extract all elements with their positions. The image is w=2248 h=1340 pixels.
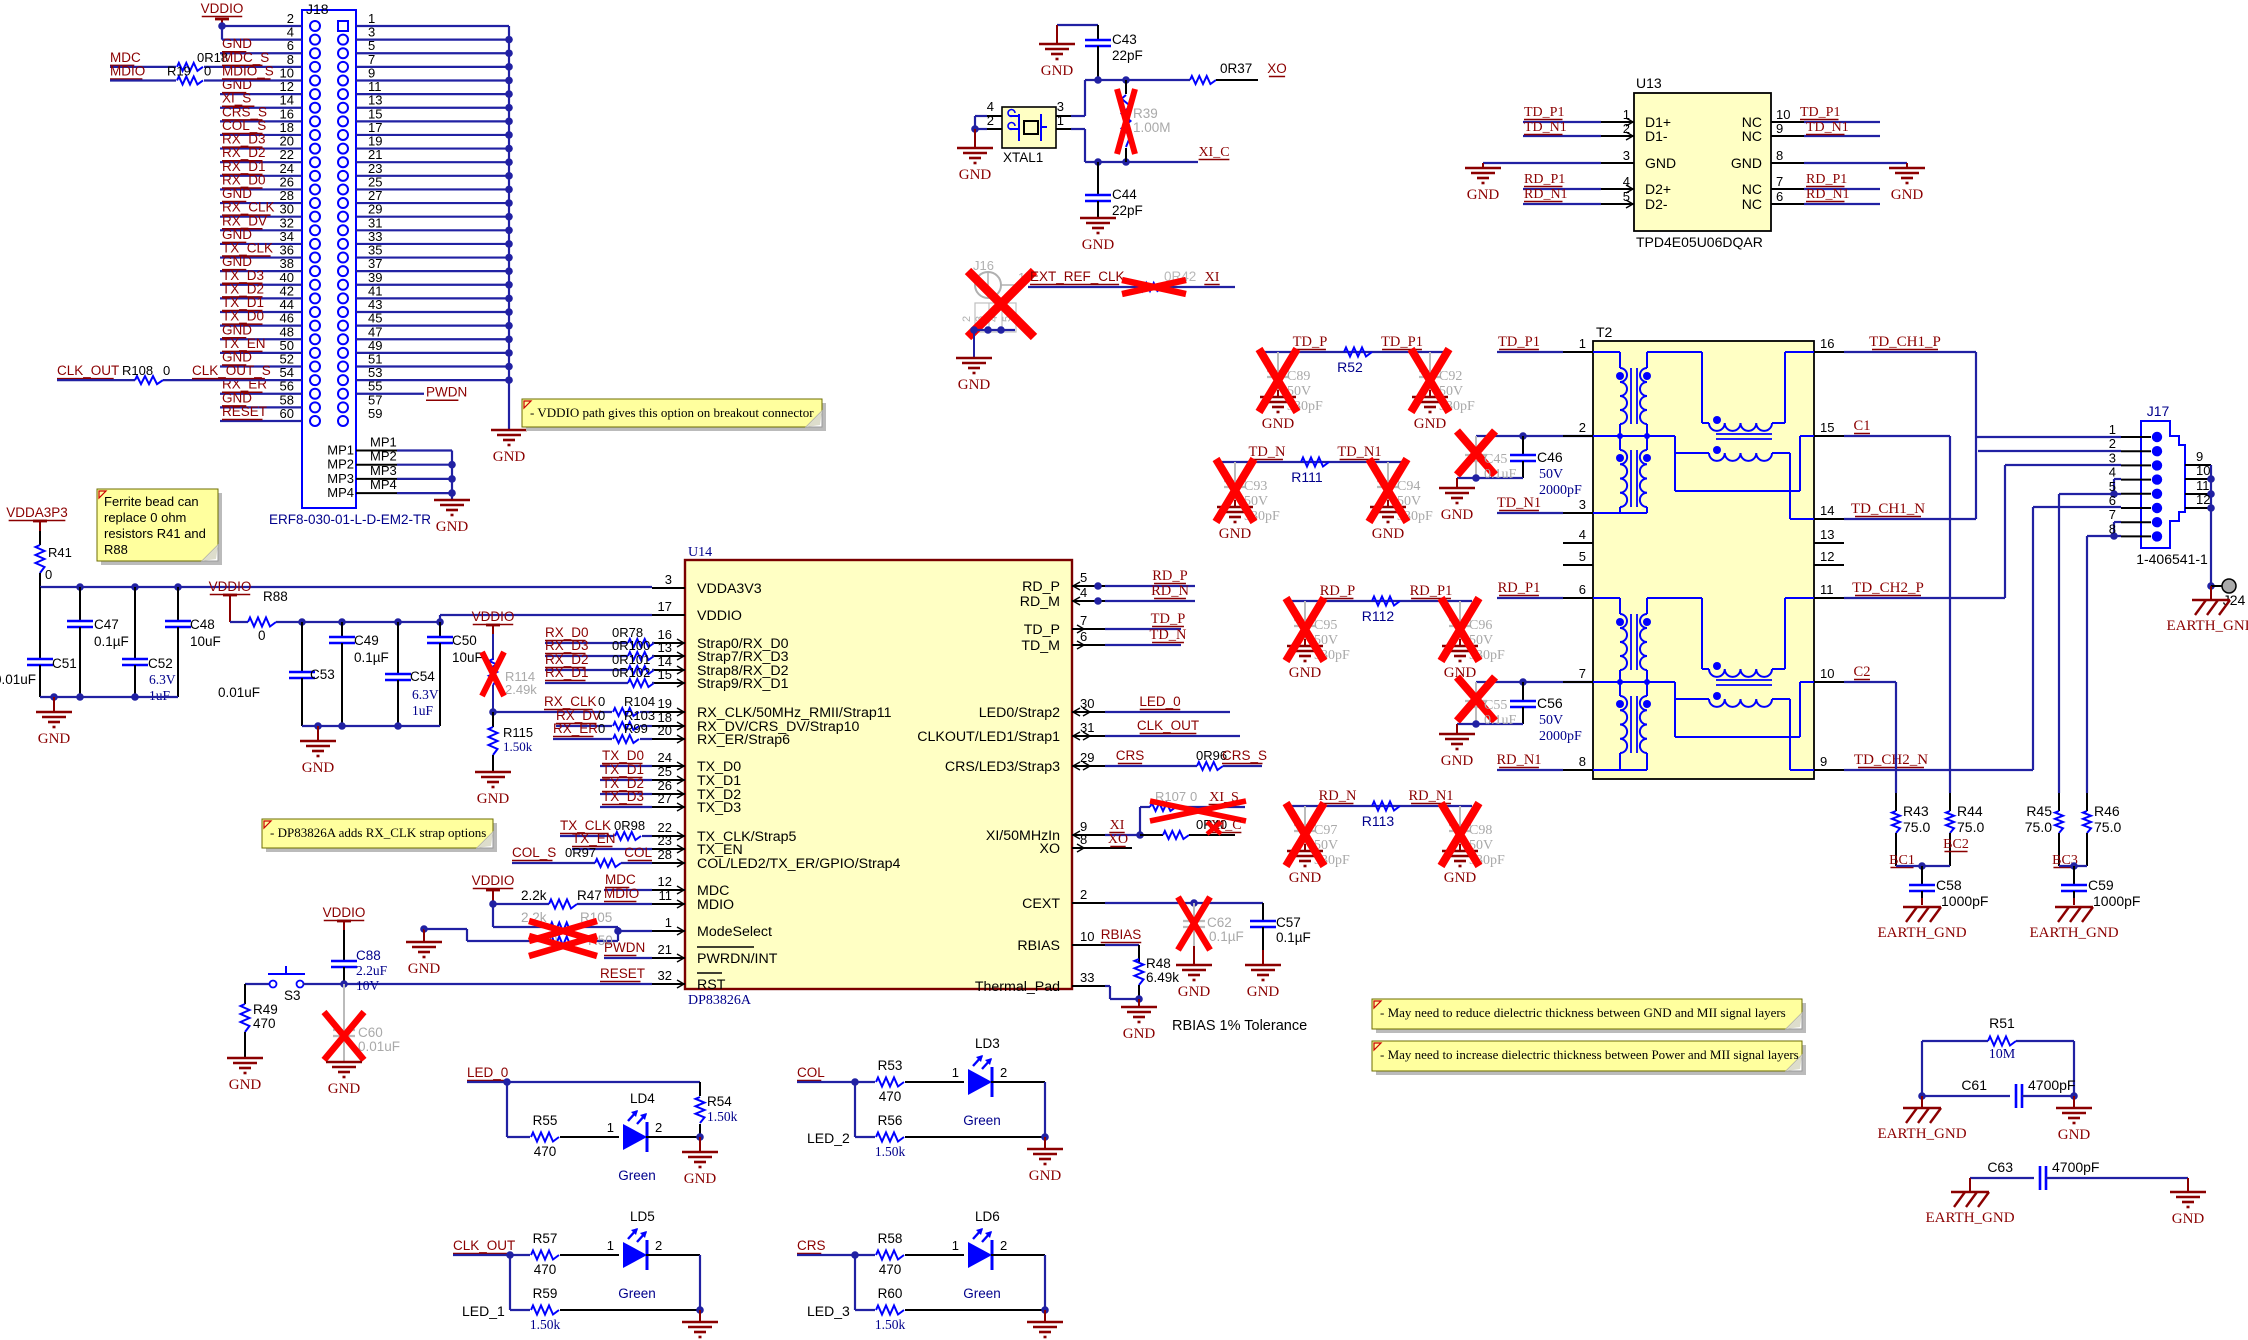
svg-text:RESET: RESET — [600, 966, 645, 981]
svg-text:6.49k: 6.49k — [1146, 970, 1179, 985]
svg-text:LED_1: LED_1 — [462, 1303, 505, 1319]
svg-text:C61: C61 — [1961, 1077, 1987, 1093]
svg-text:C88: C88 — [356, 948, 381, 963]
svg-text:2: 2 — [2109, 436, 2116, 451]
svg-text:XI: XI — [1110, 818, 1125, 833]
svg-text:VDDIO: VDDIO — [201, 1, 244, 16]
svg-text:VDDA3V3: VDDA3V3 — [697, 581, 762, 597]
svg-text:C51: C51 — [52, 656, 77, 671]
svg-text:XO: XO — [1108, 832, 1128, 847]
svg-text:10M: 10M — [1989, 1047, 2016, 1062]
svg-text:C98: C98 — [1469, 823, 1492, 838]
svg-text:TD_P: TD_P — [1151, 611, 1186, 627]
svg-text:GND: GND — [1082, 237, 1115, 253]
svg-text:LD4: LD4 — [630, 1091, 655, 1106]
svg-text:75.0: 75.0 — [2094, 819, 2121, 835]
svg-text:RBIAS: RBIAS — [1101, 927, 1142, 942]
svg-text:10: 10 — [1776, 107, 1790, 122]
svg-text:TD_M: TD_M — [1021, 638, 1060, 654]
svg-text:TD_N1: TD_N1 — [1337, 444, 1381, 460]
svg-text:VDDIO: VDDIO — [472, 873, 515, 888]
svg-text:CRS_S: CRS_S — [1222, 748, 1267, 763]
svg-text:RD_N: RD_N — [1319, 788, 1357, 804]
svg-text:GND: GND — [328, 1081, 361, 1097]
svg-text:4: 4 — [1080, 585, 1087, 600]
svg-text:29: 29 — [1080, 750, 1094, 765]
svg-text:VDDIO: VDDIO — [697, 608, 742, 624]
svg-text:LED_2: LED_2 — [807, 1130, 850, 1146]
svg-text:C49: C49 — [354, 633, 379, 648]
svg-text:TX_EN: TX_EN — [572, 831, 616, 846]
svg-text:R111: R111 — [1291, 469, 1323, 485]
svg-text:R46: R46 — [2094, 803, 2120, 819]
svg-text:VDDIO: VDDIO — [209, 579, 252, 594]
svg-text:6: 6 — [1776, 189, 1783, 204]
svg-text:Thermal_Pad: Thermal_Pad — [975, 979, 1060, 995]
svg-text:GND: GND — [1289, 870, 1322, 886]
svg-text:R41: R41 — [48, 545, 72, 560]
svg-text:28: 28 — [658, 847, 672, 862]
svg-text:CLK_OUT: CLK_OUT — [1137, 718, 1199, 733]
svg-text:1: 1 — [665, 915, 672, 930]
svg-text:0: 0 — [204, 63, 211, 78]
svg-text:6.3V: 6.3V — [149, 672, 176, 687]
svg-text:J16: J16 — [973, 258, 994, 273]
svg-text:0: 0 — [598, 721, 605, 736]
svg-text:R19: R19 — [167, 63, 191, 78]
svg-text:VDDA3P3: VDDA3P3 — [6, 505, 68, 520]
svg-text:GND: GND — [959, 167, 992, 183]
svg-text:TX_D3: TX_D3 — [602, 789, 644, 804]
svg-text:3: 3 — [1623, 148, 1630, 163]
svg-text:TD_N1: TD_N1 — [1497, 495, 1541, 511]
svg-text:MP4: MP4 — [327, 485, 354, 500]
svg-text:0: 0 — [45, 567, 52, 582]
svg-text:23: 23 — [658, 833, 672, 848]
svg-text:CRS/LED3/Strap3: CRS/LED3/Strap3 — [945, 759, 1060, 775]
svg-text:5: 5 — [1080, 570, 1087, 585]
svg-text:COL: COL — [797, 1065, 825, 1080]
svg-text:GND: GND — [229, 1077, 262, 1093]
svg-text:LD6: LD6 — [975, 1209, 1000, 1224]
svg-text:R115: R115 — [503, 725, 533, 740]
svg-text:NC: NC — [1742, 128, 1762, 144]
svg-text:50V: 50V — [1539, 713, 1563, 728]
svg-text:MDIO_S: MDIO_S — [222, 63, 274, 78]
svg-text:2.49k: 2.49k — [505, 682, 537, 697]
svg-text:R48: R48 — [1146, 956, 1171, 971]
svg-text:470: 470 — [879, 1089, 902, 1104]
svg-text:GND: GND — [958, 377, 991, 393]
svg-text:replace 0 ohm: replace 0 ohm — [104, 510, 186, 525]
svg-text:6: 6 — [2109, 493, 2116, 508]
svg-text:CRS: CRS — [797, 1238, 826, 1253]
svg-text:CEXT: CEXT — [1022, 896, 1060, 912]
svg-text:RX_D1: RX_D1 — [545, 665, 589, 680]
svg-text:D1-: D1- — [1645, 128, 1668, 144]
svg-text:C1: C1 — [1854, 418, 1871, 434]
svg-text:U14: U14 — [688, 545, 712, 560]
svg-text:GND: GND — [1178, 984, 1211, 1000]
svg-text:GND: GND — [1444, 870, 1477, 886]
svg-text:C47: C47 — [94, 617, 119, 632]
svg-text:2: 2 — [1579, 420, 1586, 435]
svg-text:- DP83826A adds RX_CLK strap o: - DP83826A adds RX_CLK strap options — [270, 825, 486, 840]
svg-text:RD_N: RD_N — [1151, 583, 1189, 599]
svg-text:C53: C53 — [310, 667, 335, 682]
svg-text:2: 2 — [1080, 887, 1087, 902]
svg-text:0: 0 — [1190, 789, 1197, 804]
svg-text:- VDDIO path gives this option: - VDDIO path gives this option on breako… — [530, 405, 814, 420]
svg-text:RD_P: RD_P — [1320, 583, 1355, 599]
svg-text:C89: C89 — [1287, 369, 1310, 384]
svg-text:470: 470 — [879, 1262, 902, 1277]
svg-text:C43: C43 — [1112, 32, 1137, 47]
svg-text:12: 12 — [2196, 492, 2210, 507]
svg-text:1: 1 — [2109, 422, 2116, 437]
svg-text:9: 9 — [1776, 121, 1783, 136]
svg-text:MP3: MP3 — [327, 471, 354, 486]
svg-text:1.50k: 1.50k — [707, 1109, 738, 1124]
svg-text:C2: C2 — [1854, 664, 1871, 680]
svg-text:RST: RST — [697, 977, 726, 993]
svg-text:RBIAS: RBIAS — [1017, 938, 1060, 954]
svg-text:XO: XO — [1040, 841, 1061, 857]
svg-text:J17: J17 — [2147, 403, 2170, 419]
svg-text:C57: C57 — [1276, 915, 1301, 930]
svg-text:12: 12 — [658, 874, 672, 889]
svg-text:TD_N1: TD_N1 — [1806, 120, 1849, 135]
svg-text:Green: Green — [963, 1286, 1001, 1301]
svg-text:9: 9 — [1820, 754, 1827, 769]
svg-text:33: 33 — [1080, 970, 1094, 985]
svg-text:R113: R113 — [1362, 813, 1395, 829]
svg-text:7: 7 — [2109, 507, 2116, 522]
svg-text:R55: R55 — [533, 1113, 558, 1128]
svg-text:TD_P: TD_P — [1024, 622, 1060, 638]
svg-text:C62: C62 — [1207, 915, 1232, 930]
svg-text:C60: C60 — [358, 1025, 383, 1040]
svg-text:C46: C46 — [1537, 449, 1563, 465]
svg-text:8: 8 — [1080, 832, 1087, 847]
svg-text:GND: GND — [436, 519, 469, 535]
svg-text:ERF8-030-01-L-D-EM2-TR: ERF8-030-01-L-D-EM2-TR — [269, 512, 431, 527]
svg-text:S3: S3 — [284, 988, 301, 1003]
svg-text:10uF: 10uF — [190, 634, 221, 649]
svg-text:RD_P1: RD_P1 — [1524, 172, 1565, 187]
svg-text:RBIAS 1% Tolerance: RBIAS 1% Tolerance — [1172, 1018, 1307, 1034]
svg-text:2.2uF: 2.2uF — [356, 963, 388, 978]
svg-text:30: 30 — [1080, 696, 1094, 711]
svg-text:C45: C45 — [1484, 452, 1507, 467]
svg-text:R104: R104 — [624, 694, 655, 709]
svg-text:9: 9 — [2196, 449, 2203, 464]
svg-text:8: 8 — [1776, 148, 1783, 163]
svg-text:resistors R41 and: resistors R41 and — [104, 526, 206, 541]
svg-text:GND: GND — [1041, 63, 1074, 79]
svg-text:3: 3 — [665, 572, 672, 587]
svg-text:R51: R51 — [1989, 1015, 2015, 1031]
svg-text:C94: C94 — [1397, 479, 1420, 494]
svg-text:MP1: MP1 — [327, 443, 354, 458]
svg-text:LD3: LD3 — [975, 1036, 1000, 1051]
svg-text:75.0: 75.0 — [1957, 819, 1984, 835]
svg-text:6: 6 — [1579, 582, 1586, 597]
svg-text:COL: COL — [624, 845, 652, 860]
svg-text:EARTH_GND: EARTH_GND — [2166, 618, 2248, 634]
svg-text:Green: Green — [963, 1113, 1001, 1128]
svg-text:R88: R88 — [263, 589, 288, 604]
svg-text:LED0/Strap2: LED0/Strap2 — [979, 705, 1060, 721]
svg-text:RX_CLK: RX_CLK — [544, 694, 597, 709]
svg-text:GND: GND — [1029, 1168, 1062, 1184]
svg-text:3: 3 — [2109, 450, 2116, 465]
svg-text:RD_P: RD_P — [1022, 579, 1060, 595]
svg-text:0.1uF: 0.1uF — [1484, 467, 1517, 482]
svg-text:GND: GND — [1441, 753, 1474, 769]
svg-text:GND: GND — [408, 961, 441, 977]
svg-text:10: 10 — [1820, 666, 1834, 681]
svg-text:4: 4 — [2109, 465, 2116, 480]
svg-text:C96: C96 — [1469, 618, 1492, 633]
svg-text:NC: NC — [1742, 181, 1762, 197]
svg-text:MP2: MP2 — [370, 449, 397, 464]
svg-text:VDDIO: VDDIO — [472, 609, 515, 624]
svg-text:C50: C50 — [452, 633, 477, 648]
svg-text:Strap9/RX_D1: Strap9/RX_D1 — [697, 676, 789, 692]
svg-text:C44: C44 — [1112, 187, 1137, 202]
svg-text:Green: Green — [618, 1168, 656, 1183]
svg-text:TD_CH2_N: TD_CH2_N — [1854, 752, 1928, 768]
svg-text:1-406541-1: 1-406541-1 — [2136, 551, 2208, 567]
svg-text:4: 4 — [987, 99, 994, 114]
svg-text:1000pF: 1000pF — [1941, 893, 1988, 909]
svg-text:R54: R54 — [707, 1094, 732, 1109]
svg-text:XI: XI — [1205, 270, 1220, 285]
svg-text:GND: GND — [1247, 984, 1280, 1000]
svg-text:1: 1 — [1579, 336, 1586, 351]
svg-text:- May need to increase dielect: - May need to increase dielectric thickn… — [1380, 1047, 1799, 1062]
svg-text:EARTH_GND: EARTH_GND — [1925, 1210, 2014, 1226]
svg-text:CLK_OUT: CLK_OUT — [453, 1238, 515, 1253]
svg-text:TD_P1: TD_P1 — [1498, 334, 1540, 350]
svg-text:2: 2 — [655, 1120, 662, 1135]
svg-text:0.01uF: 0.01uF — [218, 685, 260, 700]
svg-text:75.0: 75.0 — [1903, 819, 1930, 835]
svg-text:TD_CH1_N: TD_CH1_N — [1851, 501, 1925, 517]
svg-text:2000pF: 2000pF — [1539, 729, 1582, 744]
svg-text:2: 2 — [1000, 1065, 1007, 1080]
svg-text:C63: C63 — [1987, 1159, 2013, 1175]
svg-text:11: 11 — [659, 888, 673, 903]
svg-text:TD_N: TD_N — [1149, 627, 1187, 643]
svg-text:TD_P1: TD_P1 — [1800, 105, 1840, 120]
svg-text:0.1µF: 0.1µF — [354, 650, 389, 665]
svg-text:T2: T2 — [1596, 324, 1613, 340]
svg-text:LED_3: LED_3 — [807, 1303, 850, 1319]
svg-text:J18: J18 — [306, 1, 329, 17]
svg-text:10: 10 — [2196, 463, 2210, 478]
svg-text:1000pF: 1000pF — [2093, 893, 2140, 909]
svg-text:27: 27 — [658, 791, 672, 806]
svg-text:20: 20 — [658, 723, 672, 738]
svg-text:TD_N: TD_N — [1248, 444, 1286, 460]
svg-text:2000pF: 2000pF — [1539, 483, 1582, 498]
svg-text:R57: R57 — [533, 1231, 558, 1246]
svg-text:R43: R43 — [1903, 803, 1929, 819]
svg-text:2: 2 — [1000, 1238, 1007, 1253]
svg-text:7: 7 — [1776, 174, 1783, 189]
svg-text:470: 470 — [253, 1016, 276, 1031]
svg-text:C59: C59 — [2088, 877, 2114, 893]
svg-text:C93: C93 — [1244, 479, 1267, 494]
svg-text:RX_ER/Strap6: RX_ER/Strap6 — [697, 732, 790, 748]
svg-text:0.1µF: 0.1µF — [94, 634, 129, 649]
svg-text:75.0: 75.0 — [2025, 819, 2052, 835]
svg-text:R44: R44 — [1957, 803, 1983, 819]
svg-text:TX_D0: TX_D0 — [602, 748, 644, 763]
svg-text:R49: R49 — [253, 1002, 278, 1017]
svg-text:LED_0: LED_0 — [467, 1065, 508, 1080]
svg-text:1: 1 — [607, 1120, 614, 1135]
svg-text:EARTH_GND: EARTH_GND — [2029, 925, 2118, 941]
svg-text:Ferrite bead can: Ferrite bead can — [104, 494, 199, 509]
svg-text:GND: GND — [1645, 155, 1676, 171]
svg-text:2: 2 — [961, 316, 973, 322]
svg-text:8: 8 — [1579, 754, 1586, 769]
svg-text:59: 59 — [368, 406, 382, 421]
svg-text:GND: GND — [1467, 187, 1500, 203]
svg-text:EARTH_GND: EARTH_GND — [1877, 925, 1966, 941]
svg-text:10V: 10V — [356, 978, 380, 993]
svg-text:GND: GND — [1123, 1026, 1156, 1042]
svg-text:22pF: 22pF — [1112, 48, 1143, 63]
svg-text:2: 2 — [655, 1238, 662, 1253]
svg-text:LD5: LD5 — [630, 1209, 655, 1224]
svg-text:CLKOUT/LED1/Strap1: CLKOUT/LED1/Strap1 — [917, 729, 1060, 745]
svg-text:32: 32 — [658, 968, 672, 983]
svg-text:1: 1 — [607, 1238, 614, 1253]
svg-text:R108: R108 — [122, 363, 153, 378]
svg-text:RD_N1: RD_N1 — [1524, 187, 1568, 202]
svg-text:1.50k: 1.50k — [530, 1317, 561, 1332]
svg-text:R56: R56 — [878, 1113, 903, 1128]
svg-text:4: 4 — [1579, 527, 1586, 542]
svg-text:0: 0 — [258, 628, 266, 643]
svg-text:MDIO: MDIO — [604, 886, 639, 901]
svg-text:5: 5 — [1579, 549, 1586, 564]
svg-text:10uF: 10uF — [452, 650, 483, 665]
svg-text:11: 11 — [1820, 582, 1834, 597]
svg-text:R60: R60 — [878, 1286, 903, 1301]
svg-text:RD_P: RD_P — [1152, 568, 1187, 584]
svg-text:4700pF: 4700pF — [2052, 1159, 2099, 1175]
svg-text:R99: R99 — [624, 721, 648, 736]
svg-text:GND: GND — [2058, 1127, 2091, 1143]
svg-text:1uF: 1uF — [149, 688, 171, 703]
svg-text:VDDIO: VDDIO — [323, 905, 366, 920]
svg-text:21: 21 — [658, 942, 672, 957]
svg-text:GND: GND — [1289, 665, 1322, 681]
svg-text:0: 0 — [598, 694, 605, 709]
svg-text:RD_N1: RD_N1 — [1496, 752, 1541, 768]
svg-text:1.50k: 1.50k — [875, 1144, 906, 1159]
svg-text:C58: C58 — [1936, 877, 1962, 893]
svg-text:R112: R112 — [1362, 608, 1395, 624]
svg-text:3: 3 — [1057, 99, 1064, 114]
svg-text:C56: C56 — [1537, 695, 1563, 711]
svg-text:PWDN: PWDN — [426, 385, 467, 400]
svg-text:MDC: MDC — [605, 872, 636, 887]
svg-text:GND: GND — [684, 1171, 717, 1187]
svg-text:RD_P1: RD_P1 — [1806, 172, 1847, 187]
svg-text:PWRDN/INT: PWRDN/INT — [697, 951, 778, 967]
svg-text:1.50k: 1.50k — [875, 1317, 906, 1332]
svg-text:COL/LED2/TX_ER/GPIO/Strap4: COL/LED2/TX_ER/GPIO/Strap4 — [697, 856, 901, 872]
svg-text:COL_S: COL_S — [512, 845, 556, 860]
svg-text:D2-: D2- — [1645, 196, 1668, 212]
svg-text:CLK_OUT_S: CLK_OUT_S — [192, 363, 271, 378]
svg-text:10: 10 — [1080, 929, 1094, 944]
svg-text:1: 1 — [952, 1238, 959, 1253]
svg-text:15: 15 — [1820, 420, 1834, 435]
svg-text:R52: R52 — [1337, 359, 1363, 375]
svg-text:CRS: CRS — [1116, 748, 1145, 763]
svg-text:C95: C95 — [1314, 618, 1337, 633]
svg-text:6: 6 — [1080, 629, 1087, 644]
svg-text:470: 470 — [534, 1144, 557, 1159]
svg-text:7: 7 — [1080, 613, 1087, 628]
svg-text:14: 14 — [1820, 503, 1834, 518]
svg-text:TD_CH1_P: TD_CH1_P — [1869, 334, 1941, 350]
svg-text:GND: GND — [1731, 155, 1762, 171]
svg-text:13: 13 — [1820, 527, 1834, 542]
svg-text:R45: R45 — [2026, 803, 2052, 819]
svg-text:MDIO: MDIO — [110, 63, 145, 78]
svg-text:GND: GND — [38, 731, 71, 747]
svg-text:0.01uF: 0.01uF — [358, 1039, 400, 1054]
svg-text:16: 16 — [1820, 336, 1834, 351]
svg-text:2.2k: 2.2k — [521, 888, 547, 903]
svg-text:MP1: MP1 — [370, 435, 397, 450]
svg-text:1: 1 — [952, 1065, 959, 1080]
svg-text:GND: GND — [1219, 526, 1252, 542]
svg-text:0R98: 0R98 — [614, 818, 645, 833]
svg-text:GND: GND — [1441, 507, 1474, 523]
svg-text:12: 12 — [1820, 549, 1834, 564]
svg-text:0: 0 — [163, 363, 170, 378]
svg-text:GND: GND — [1891, 187, 1924, 203]
svg-text:17: 17 — [658, 599, 672, 614]
svg-text:C55: C55 — [1484, 698, 1507, 713]
svg-text:RD_P1: RD_P1 — [1498, 580, 1541, 596]
svg-text:EARTH_GND: EARTH_GND — [1877, 1126, 1966, 1142]
svg-text:22pF: 22pF — [1112, 203, 1143, 218]
svg-text:TD_P: TD_P — [1293, 334, 1328, 350]
svg-text:R47: R47 — [577, 888, 602, 903]
svg-text:R58: R58 — [878, 1231, 903, 1246]
svg-text:50V: 50V — [1539, 467, 1563, 482]
svg-text:GND: GND — [477, 791, 510, 807]
svg-text:MP2: MP2 — [327, 457, 354, 472]
svg-text:R59: R59 — [533, 1286, 558, 1301]
svg-text:C54: C54 — [410, 669, 435, 684]
svg-text:RESET: RESET — [222, 404, 267, 419]
svg-text:1uF: 1uF — [412, 703, 434, 718]
svg-text:GND: GND — [2172, 1211, 2205, 1227]
svg-text:DP83826A: DP83826A — [688, 993, 752, 1008]
svg-text:1.00M: 1.00M — [1133, 120, 1171, 135]
